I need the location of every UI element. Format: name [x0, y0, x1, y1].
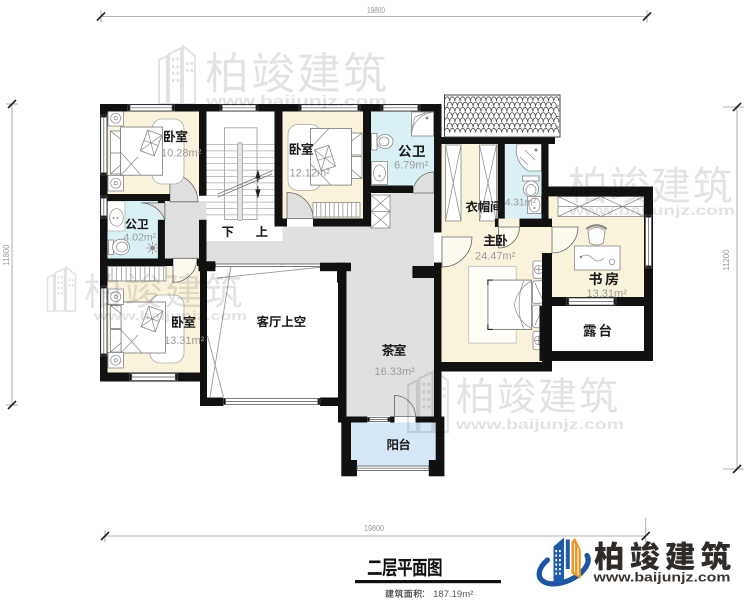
svg-text:www.baijunjz.com: www.baijunjz.com [93, 308, 247, 323]
svg-text:： 187.19m²: ： 187.19m² [421, 589, 473, 600]
svg-text:19800: 19800 [367, 6, 385, 15]
svg-text:11800: 11800 [2, 244, 11, 266]
svg-text:4.31m²: 4.31m² [505, 198, 537, 209]
svg-text:www.baijunjz.com: www.baijunjz.com [455, 416, 624, 432]
svg-text:6.79m²: 6.79m² [394, 159, 429, 171]
svg-text:13.31m²: 13.31m² [587, 288, 628, 300]
svg-text:16.33m²: 16.33m² [375, 366, 416, 378]
svg-text:4.02m²: 4.02m² [124, 232, 157, 244]
svg-text:24.47m²: 24.47m² [475, 251, 516, 263]
svg-text:12.12m²: 12.12m² [290, 167, 331, 179]
svg-text:www.baijunjz.com: www.baijunjz.com [205, 93, 387, 110]
svg-text:10.28m²: 10.28m² [161, 148, 202, 160]
svg-text:www.baijunjz.com: www.baijunjz.com [568, 202, 735, 218]
svg-text:www.baijunjz.com: www.baijunjz.com [592, 571, 730, 585]
svg-text:11200: 11200 [722, 249, 731, 271]
svg-text:13.31m²: 13.31m² [164, 335, 205, 347]
svg-text:19800: 19800 [364, 524, 384, 533]
